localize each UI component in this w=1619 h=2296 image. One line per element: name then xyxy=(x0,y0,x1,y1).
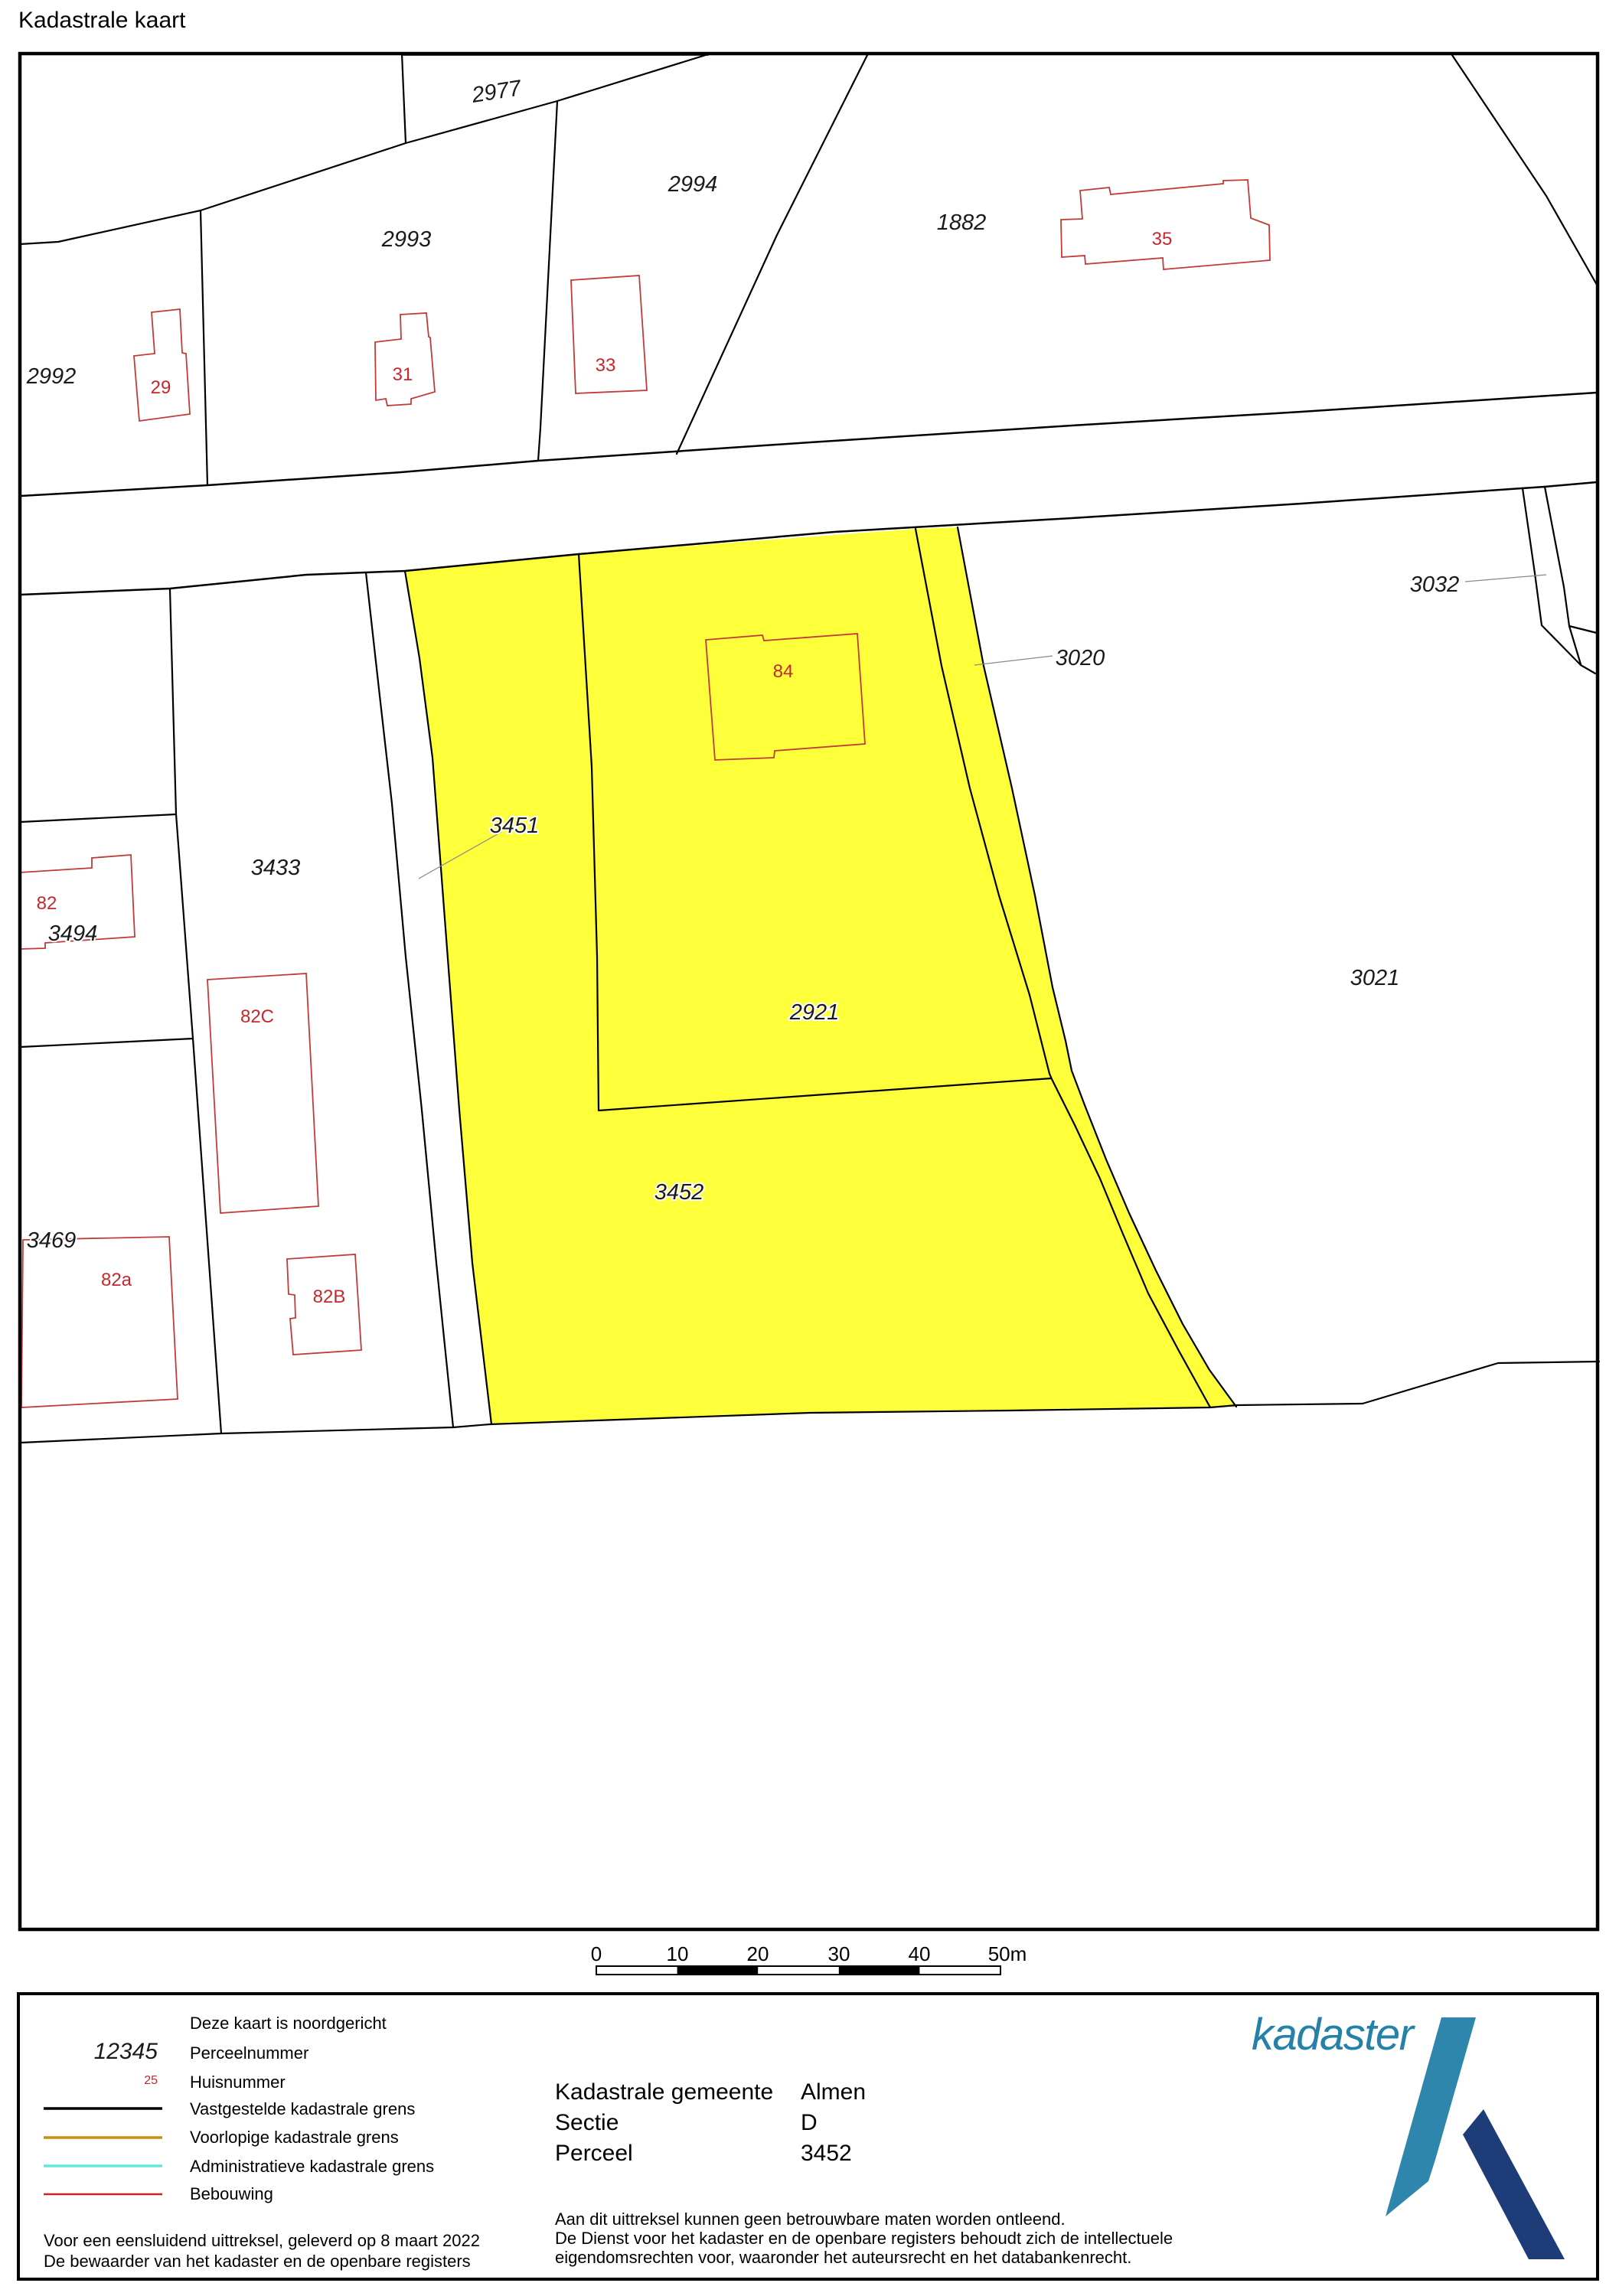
svg-text:3433: 3433 xyxy=(251,856,301,880)
svg-text:40: 40 xyxy=(909,1942,931,1965)
svg-text:82a: 82a xyxy=(101,1270,132,1290)
svg-text:Almen: Almen xyxy=(801,2079,866,2105)
svg-text:30: 30 xyxy=(828,1942,850,1965)
svg-text:82: 82 xyxy=(37,893,57,914)
svg-text:3452: 3452 xyxy=(801,2141,852,2166)
svg-text:Kadastrale gemeente: Kadastrale gemeente xyxy=(555,2079,773,2105)
svg-text:3451: 3451 xyxy=(490,814,540,838)
svg-text:25: 25 xyxy=(144,2074,158,2087)
svg-text:Perceel: Perceel xyxy=(555,2141,633,2166)
svg-text:Aan dit uittreksel kunnen geen: Aan dit uittreksel kunnen geen betrouwba… xyxy=(555,2210,1066,2229)
svg-text:3469: 3469 xyxy=(27,1228,77,1253)
svg-text:Deze kaart is noordgericht: Deze kaart is noordgericht xyxy=(190,2014,387,2033)
svg-text:Perceelnummer: Perceelnummer xyxy=(190,2043,308,2063)
svg-text:2992: 2992 xyxy=(26,364,77,389)
svg-text:De bewaarder van het kadaster: De bewaarder van het kadaster en de open… xyxy=(44,2252,471,2271)
svg-text:10: 10 xyxy=(667,1942,689,1965)
svg-text:Voor een eensluidend uittrekse: Voor een eensluidend uittreksel, gelever… xyxy=(44,2231,480,2250)
svg-text:D: D xyxy=(801,2110,818,2135)
svg-text:2994: 2994 xyxy=(668,172,718,197)
svg-text:3021: 3021 xyxy=(1350,966,1400,990)
svg-text:eigendomsrechten voor, waarond: eigendomsrechten voor, waaronder het aut… xyxy=(555,2248,1131,2267)
svg-text:3032: 3032 xyxy=(1410,572,1460,597)
svg-text:2921: 2921 xyxy=(789,1000,840,1025)
svg-text:3494: 3494 xyxy=(48,921,98,946)
svg-text:De Dienst voor het kadaster en: De Dienst voor het kadaster en de openba… xyxy=(555,2229,1173,2248)
svg-text:82B: 82B xyxy=(313,1287,346,1307)
svg-text:Sectie: Sectie xyxy=(555,2110,619,2135)
svg-text:50m: 50m xyxy=(988,1942,1027,1965)
svg-text:0: 0 xyxy=(591,1942,602,1965)
svg-text:Huisnummer: Huisnummer xyxy=(190,2073,286,2092)
svg-text:2993: 2993 xyxy=(381,227,432,252)
svg-text:84: 84 xyxy=(773,661,794,682)
svg-text:31: 31 xyxy=(393,364,413,385)
svg-text:Voorlopige kadastrale grens: Voorlopige kadastrale grens xyxy=(190,2128,399,2147)
svg-text:Vastgestelde kadastrale grens: Vastgestelde kadastrale grens xyxy=(190,2099,415,2118)
svg-text:29: 29 xyxy=(151,377,171,398)
svg-text:Administratieve kadastrale gre: Administratieve kadastrale grens xyxy=(190,2157,434,2176)
svg-text:12345: 12345 xyxy=(94,2039,158,2064)
svg-text:Kadastrale kaart: Kadastrale kaart xyxy=(18,8,186,33)
svg-text:Bebouwing: Bebouwing xyxy=(190,2184,273,2203)
svg-text:20: 20 xyxy=(747,1942,769,1965)
svg-text:1882: 1882 xyxy=(937,210,987,235)
svg-text:3020: 3020 xyxy=(1056,646,1105,670)
svg-text:3452: 3452 xyxy=(654,1180,704,1205)
svg-text:kadaster: kadaster xyxy=(1252,2010,1416,2060)
svg-text:82C: 82C xyxy=(240,1006,274,1027)
svg-text:33: 33 xyxy=(596,355,616,376)
svg-text:35: 35 xyxy=(1152,229,1173,249)
